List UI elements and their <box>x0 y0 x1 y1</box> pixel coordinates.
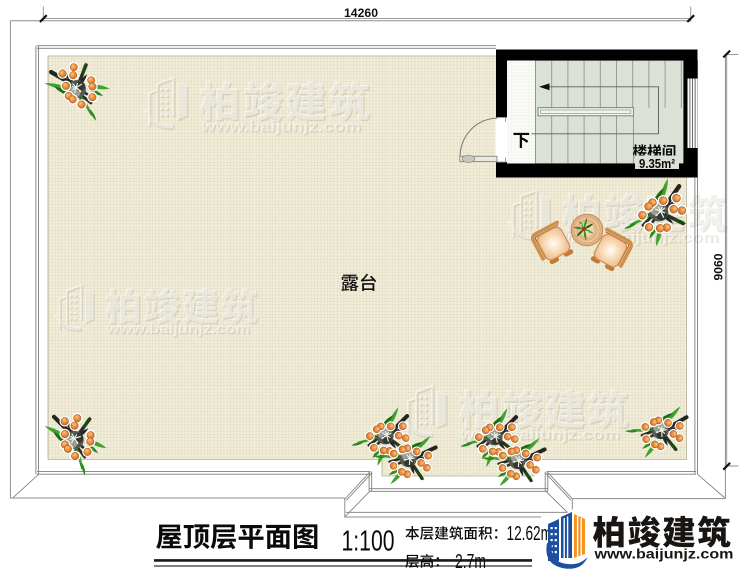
svg-text:2.7m: 2.7m <box>455 551 486 573</box>
svg-text:1:100: 1:100 <box>342 526 395 558</box>
svg-text:9.35m²: 9.35m² <box>639 156 676 171</box>
svg-text:www.baijunjz.com: www.baijunjz.com <box>593 546 733 562</box>
svg-text:9060: 9060 <box>714 254 726 281</box>
svg-text:14260: 14260 <box>344 8 378 20</box>
